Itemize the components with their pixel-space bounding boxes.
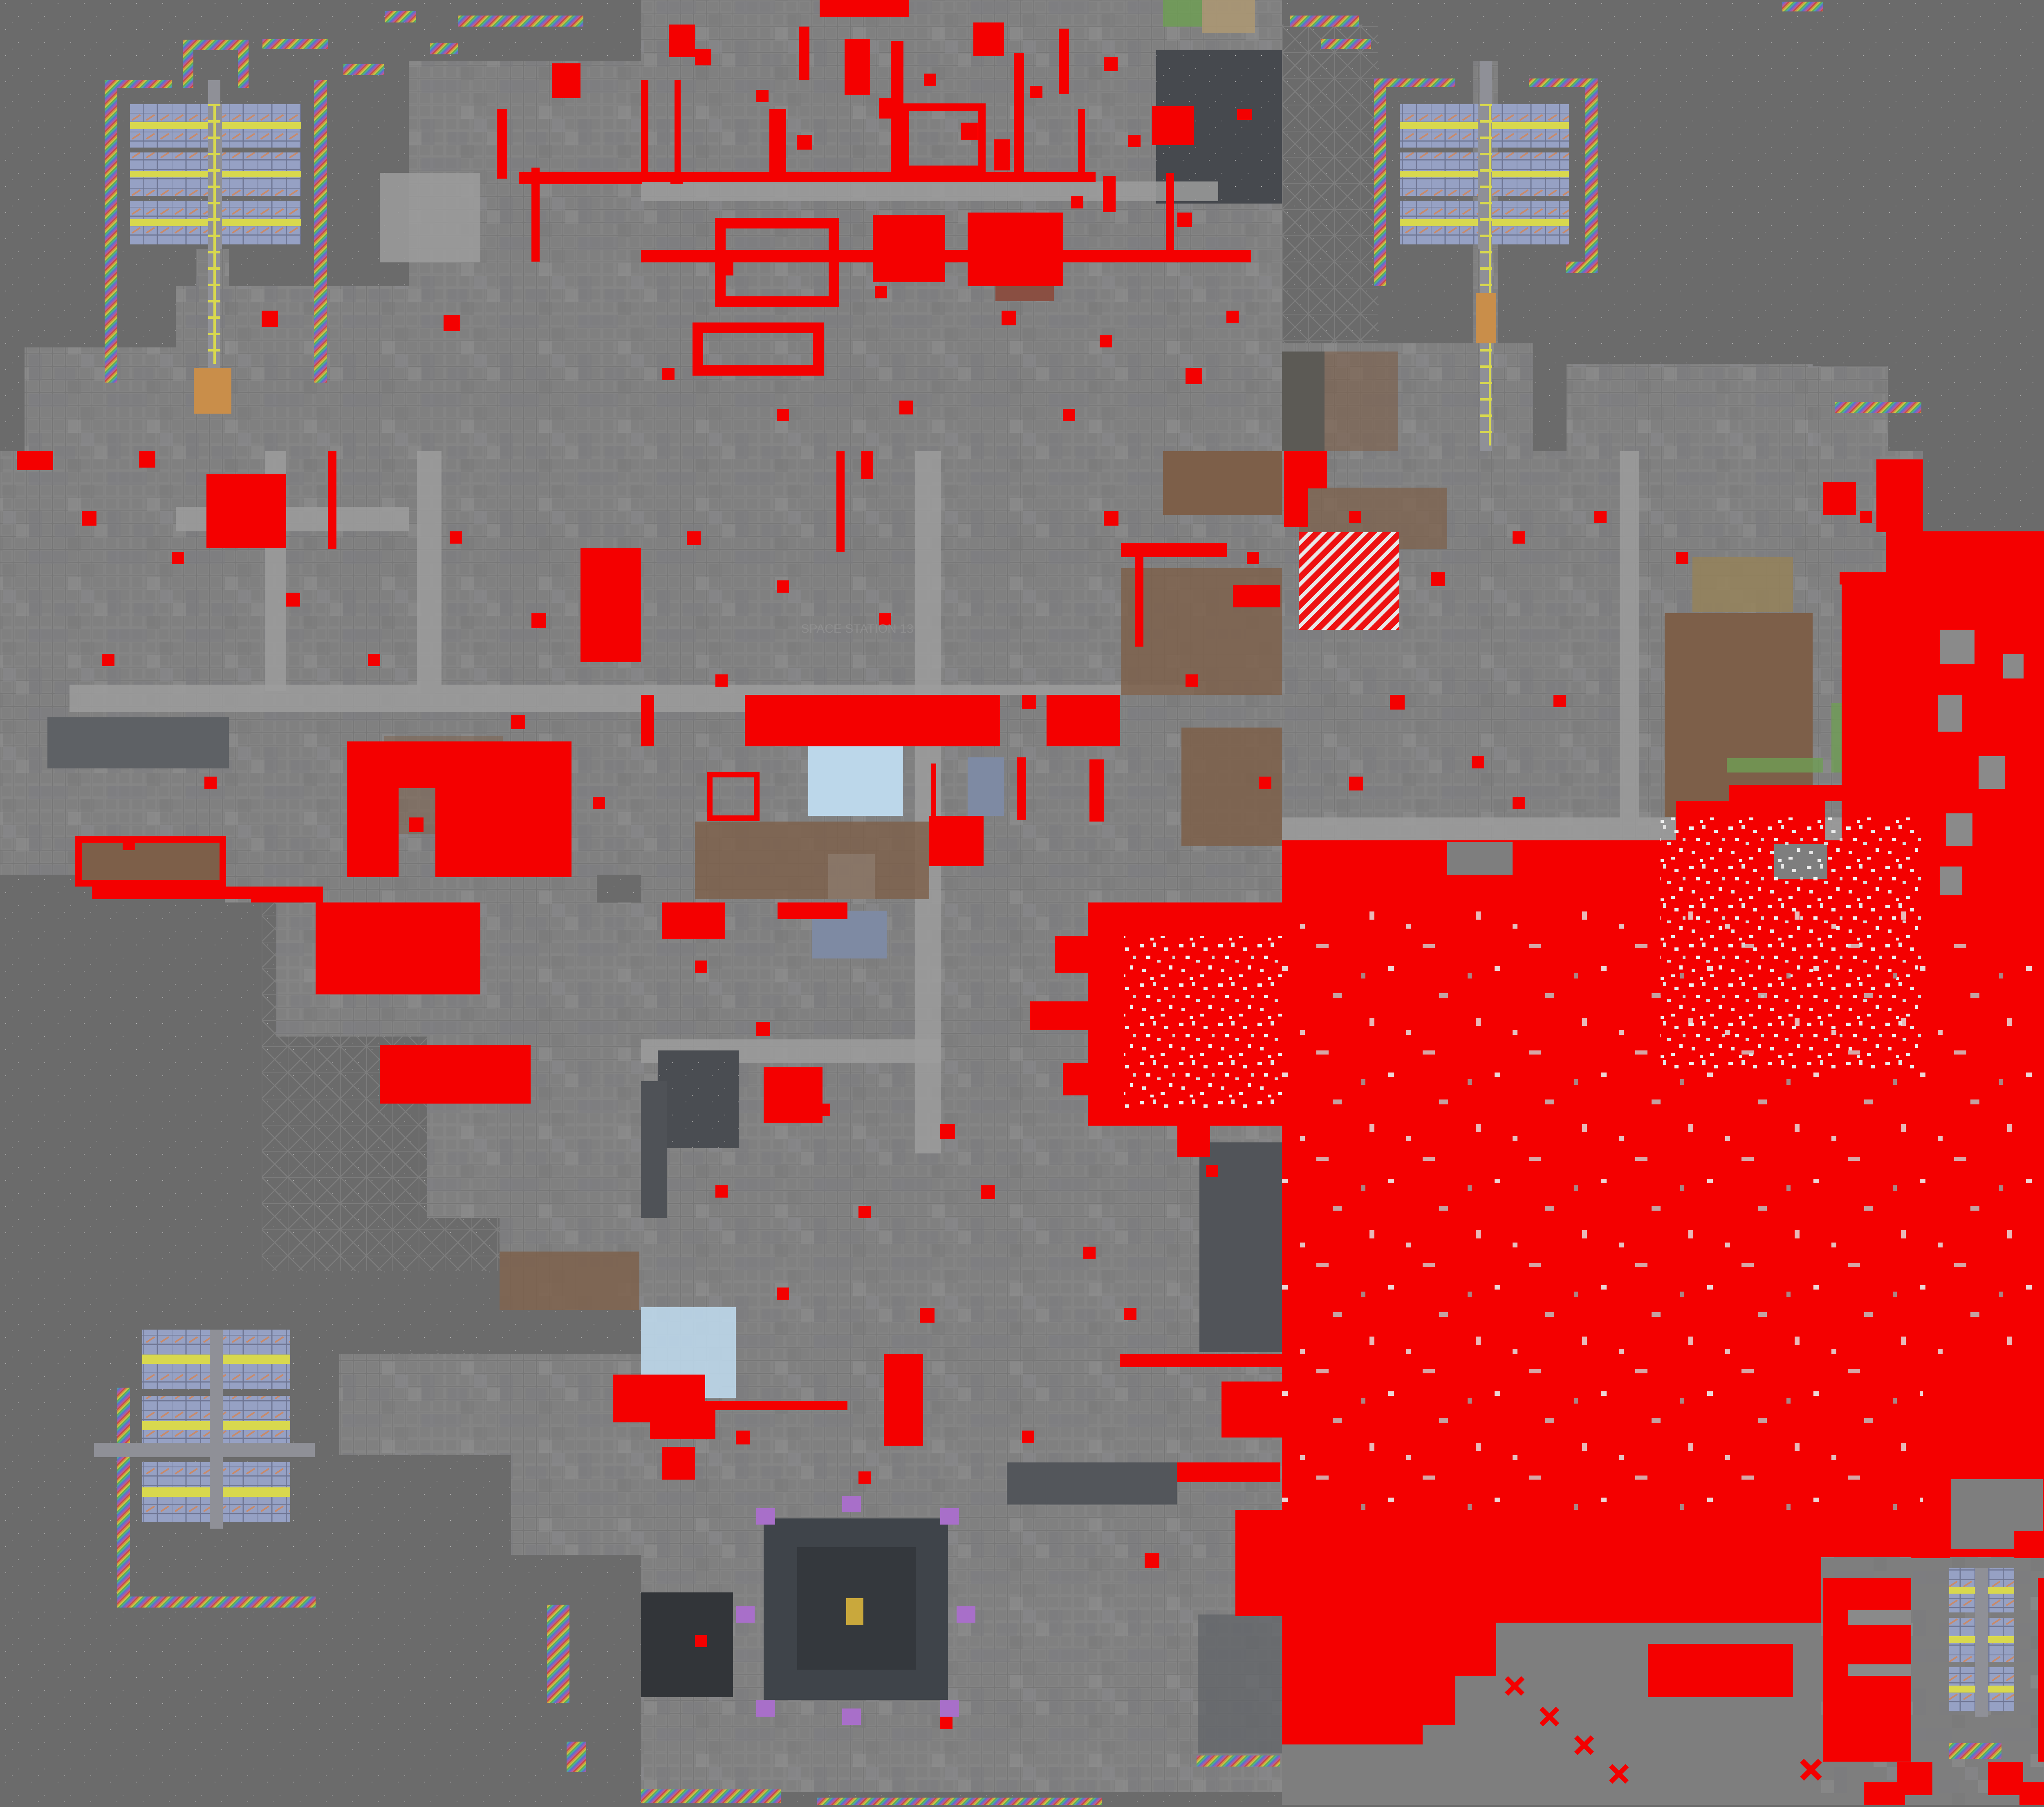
- svg-text:SPACE STATION 13: SPACE STATION 13: [801, 622, 913, 636]
